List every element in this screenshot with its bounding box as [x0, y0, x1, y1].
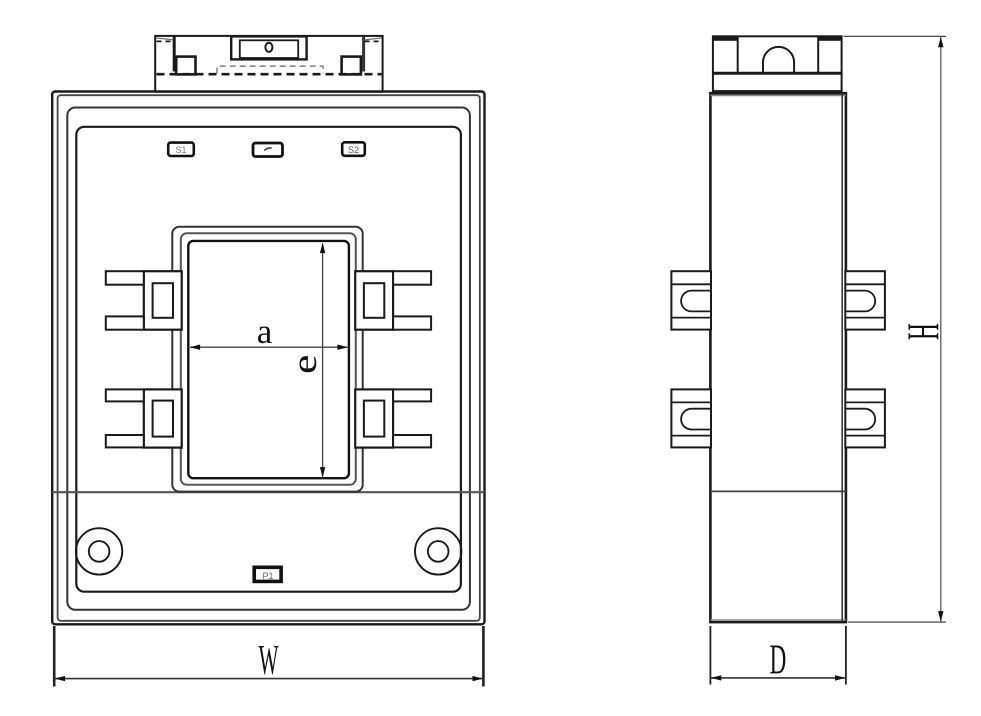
- svg-text:S2: S2: [348, 145, 359, 155]
- svg-text:H: H: [898, 323, 948, 340]
- svg-text:e: e: [285, 355, 324, 374]
- svg-text:P1: P1: [262, 571, 273, 581]
- svg-text:D: D: [770, 638, 787, 684]
- svg-text:W: W: [259, 637, 279, 684]
- svg-text:S1: S1: [175, 145, 186, 155]
- svg-text:a: a: [257, 312, 273, 351]
